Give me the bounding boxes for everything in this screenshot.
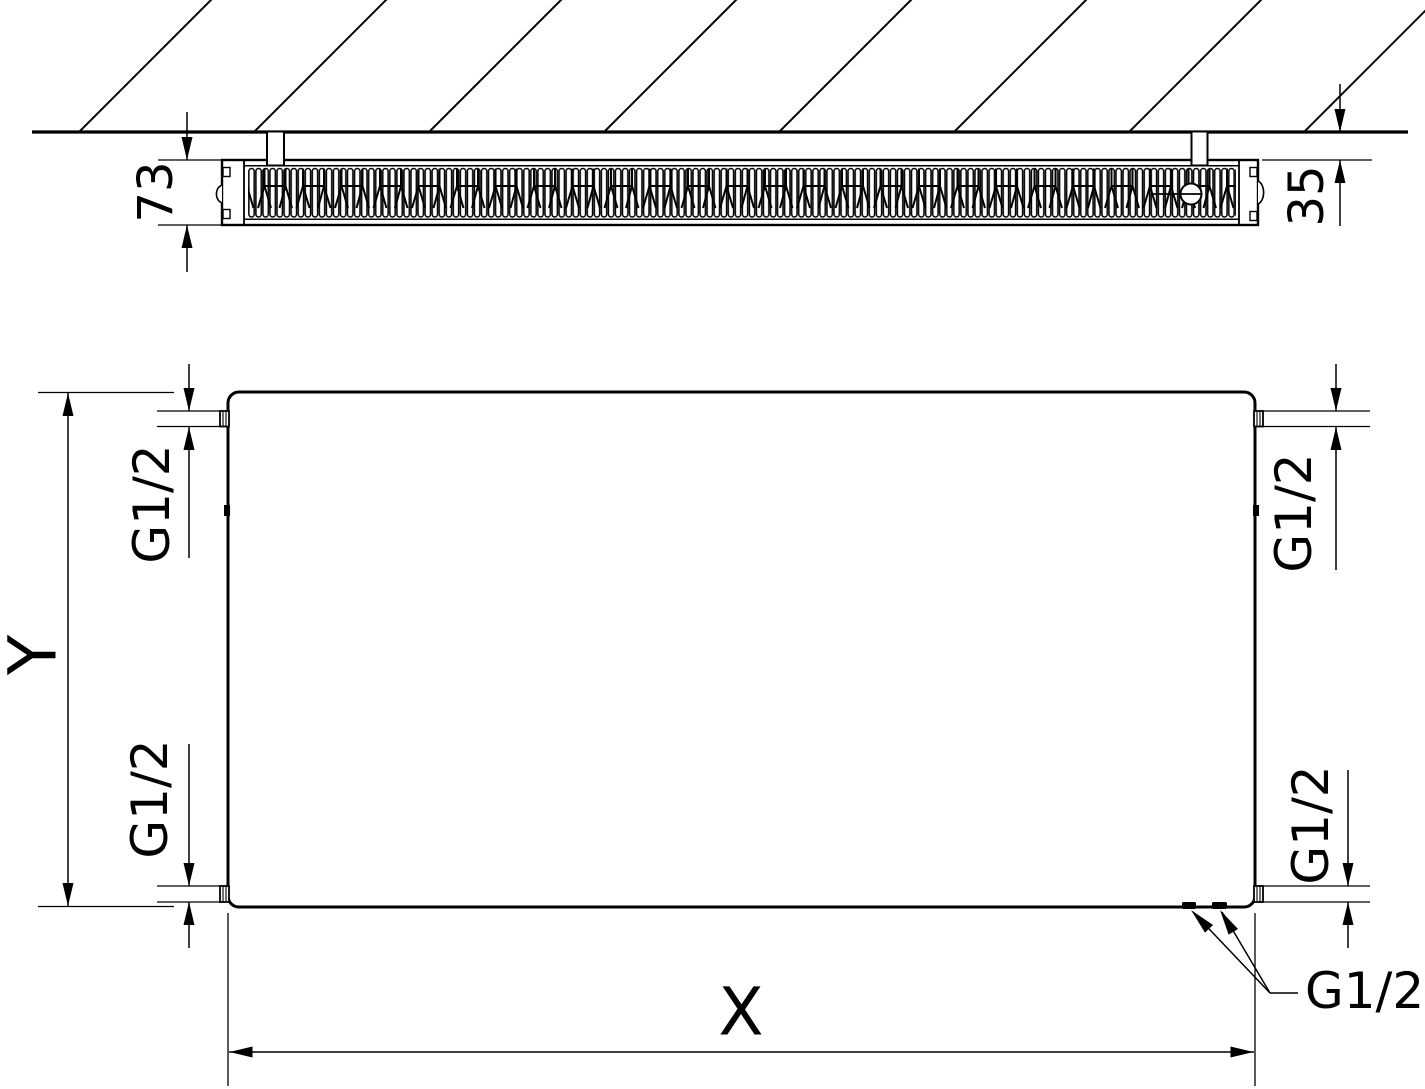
- right-cap-bump: [1258, 181, 1264, 204]
- leader-bottom-connections: [1191, 910, 1298, 993]
- arrowhead: [182, 225, 193, 248]
- left-cap-nub-top: [223, 168, 230, 177]
- connection-stub-top-left: [220, 411, 229, 427]
- thread-label-bottom-center: G1/2: [1305, 962, 1424, 1020]
- arrowhead: [230, 1047, 253, 1058]
- arrowhead: [1220, 910, 1238, 935]
- arrowhead: [1331, 388, 1342, 411]
- technical-drawing-sheet: 73 35: [0, 0, 1425, 1089]
- wall-hatching: [80, 0, 1425, 131]
- dim-height-label: Y: [0, 634, 72, 676]
- dim-depth-value: 73: [128, 161, 184, 222]
- arrowhead: [184, 902, 195, 925]
- left-edge-tab: [224, 505, 230, 516]
- arrowhead: [184, 427, 195, 450]
- thread-label-bottom-left: G1/2: [121, 739, 179, 858]
- wall-bracket-left: [267, 132, 284, 166]
- arrowhead: [1343, 863, 1354, 886]
- bottom-connection-left: [1182, 902, 1196, 909]
- left-cap-nub-bottom: [223, 210, 230, 219]
- connection-stub-top-right: [1254, 411, 1263, 427]
- arrowhead: [1331, 427, 1342, 450]
- thread-label-bottom-right: G1/2: [1282, 765, 1340, 884]
- connection-stub-bottom-left: [220, 886, 229, 902]
- right-cap-nub-bottom: [1250, 212, 1257, 221]
- right-edge-tab: [1253, 505, 1259, 516]
- arrowhead: [63, 883, 74, 906]
- arrowhead: [63, 393, 74, 416]
- radiator-front-view: [220, 392, 1263, 909]
- radiator-top-view: [216, 132, 1263, 226]
- left-cap-bump: [216, 185, 222, 203]
- radiator-dimension-drawing: 73 35: [0, 0, 1425, 1089]
- arrowhead: [1335, 109, 1346, 132]
- radiator-panel: [228, 392, 1255, 907]
- connection-stub-bottom-right: [1254, 886, 1263, 902]
- arrowhead: [182, 137, 193, 160]
- arrowhead: [1335, 160, 1346, 183]
- right-cap-nub-top: [1250, 168, 1257, 177]
- arrowhead: [184, 388, 195, 411]
- bottom-connection-right: [1212, 902, 1227, 909]
- wall-bracket-right: [1192, 132, 1208, 166]
- thread-label-top-left: G1/2: [123, 444, 181, 563]
- dim-wall-gap-value: 35: [1279, 165, 1335, 226]
- thread-label-top-right: G1/2: [1265, 453, 1323, 572]
- arrowhead: [1231, 1047, 1254, 1058]
- arrowhead: [1343, 902, 1354, 925]
- convector-fin-channels: [248, 168, 1236, 219]
- arrowhead: [184, 863, 195, 886]
- dim-width-label: X: [718, 974, 763, 1051]
